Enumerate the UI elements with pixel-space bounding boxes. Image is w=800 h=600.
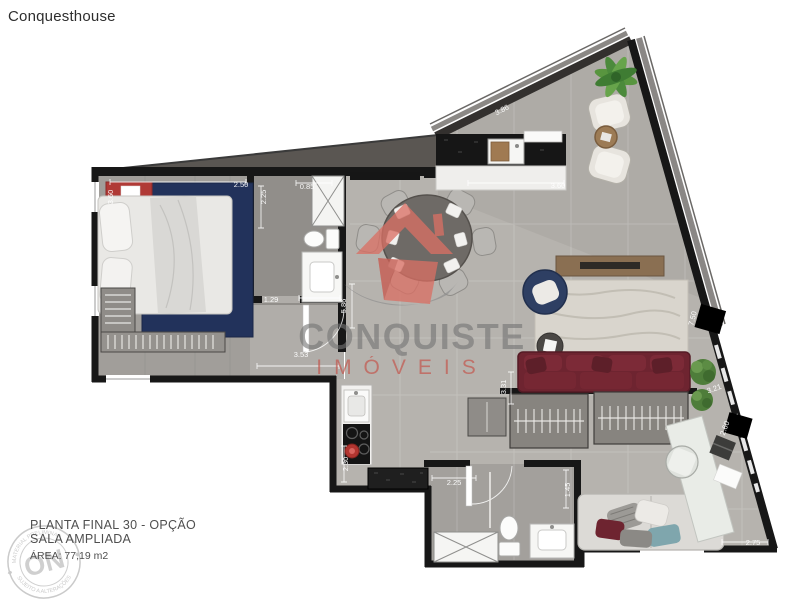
brand-subtitle: IMÓVEIS (316, 356, 488, 379)
vanity-sink-2 (530, 524, 574, 558)
dimension-label: 3.60 (106, 190, 115, 205)
vanity-sink (302, 252, 342, 302)
dimension-label: 2.25 (259, 190, 268, 205)
counter-ledge (436, 166, 566, 190)
dimension-label: 1.45 (563, 483, 572, 498)
counter-drawer-unit (524, 131, 562, 142)
kitchen-island (368, 468, 428, 489)
caption-line2: SALA AMPLIADA (30, 532, 196, 546)
brand-name: CONQUISTE (298, 316, 526, 357)
living-plant (690, 359, 716, 385)
caption-line1: PLANTA FINAL 30 - OPÇÃO (30, 518, 196, 532)
dimension-label: 2.30 (341, 457, 350, 472)
dimension-label: 2.25 (447, 478, 462, 487)
dimension-label: 2.75 (746, 538, 761, 547)
desk-chair (666, 446, 698, 478)
dimension-label: 3.31 (499, 380, 508, 395)
plan-caption: PLANTA FINAL 30 - OPÇÃO SALA AMPLIADA ÁR… (30, 518, 196, 563)
wall-shelf (350, 172, 420, 180)
floorplan-drawing: 3.602.502.250.853.863.601.295.863.532.30… (0, 0, 800, 600)
shower-box-2 (434, 532, 498, 562)
dimension-label: 5.86 (339, 299, 348, 314)
dimension-label: 2.50 (234, 180, 249, 189)
kitchen-sink (344, 390, 369, 422)
caption-area: ÁREA: 77,19 m2 (30, 549, 196, 563)
shower-box (312, 176, 344, 226)
dimension-label: 0.85 (300, 182, 315, 191)
dimension-label: 1.29 (264, 295, 279, 304)
dimension-label: 3.60 (551, 181, 566, 190)
terrace-sink (488, 139, 524, 164)
accent-armchair (523, 270, 567, 314)
bedroom (98, 182, 253, 352)
closet-module-1 (510, 394, 588, 448)
closet-rack-vertical (101, 288, 135, 332)
tv-console (556, 256, 664, 276)
sofa (518, 352, 690, 392)
floorplan-page: Conquesthouse (0, 0, 800, 600)
closet-rack-bottom (101, 332, 225, 352)
